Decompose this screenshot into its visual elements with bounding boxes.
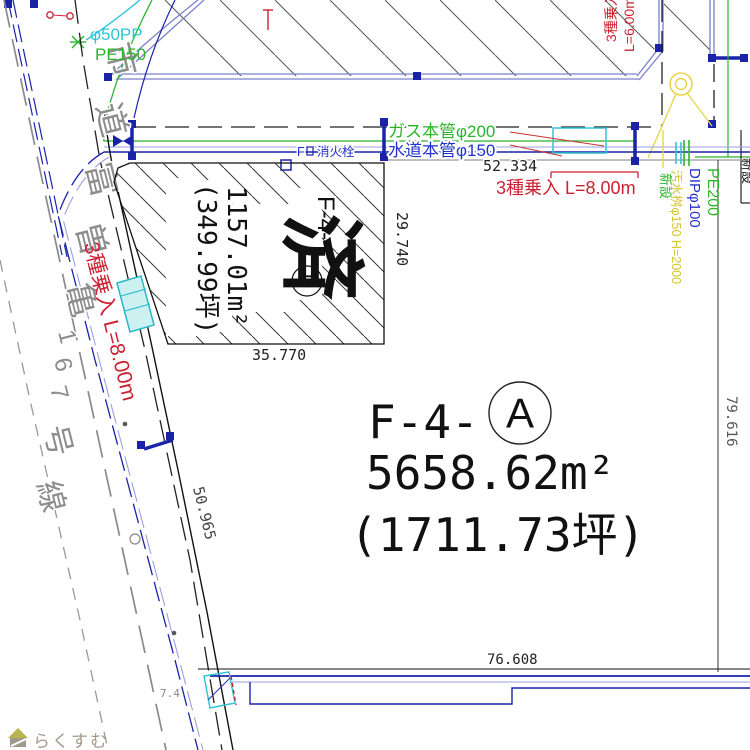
pipe-node-icon: [740, 54, 748, 62]
road-name-char: 号: [37, 421, 78, 460]
dimension-label: 35.770: [252, 346, 306, 364]
road-name-char: 道: [88, 99, 133, 141]
pipe-node-icon: [708, 120, 716, 128]
dimension-label: 7.4: [160, 687, 180, 700]
dimension-label: 52.334: [483, 157, 537, 175]
valve-icon: [137, 432, 174, 449]
parcel-d-tsubo: (349.99坪): [191, 183, 221, 334]
parcel-d-sold-stamp: 済: [272, 214, 368, 301]
dip-label: DIPφ100: [686, 168, 703, 228]
road-dot-icon: [123, 422, 128, 427]
entrance-ne-label: 3種乗入: [603, 0, 619, 42]
parcel-a-tsubo: (1711.73坪): [350, 508, 645, 562]
hydrant-glyph-icon: [307, 147, 313, 155]
service-pipe-label: φ50PP: [90, 25, 143, 44]
pe200-label: PE200: [704, 168, 721, 216]
valve-icon: [631, 122, 639, 165]
road-dot-icon: [172, 631, 177, 636]
road-name-char: 7: [44, 383, 73, 402]
dimension-label: 76.608: [487, 652, 538, 668]
dimension-label: 29.740: [393, 212, 411, 266]
north-parcel: [104, 0, 710, 81]
watermark: らくすむ: [8, 728, 109, 750]
road-name-char: 1: [52, 327, 81, 346]
service-pipe2-label: PE150: [95, 45, 146, 64]
pipe-node-icon: [30, 0, 38, 8]
gas-main-label: ガス本管φ200: [388, 122, 495, 141]
pipe-node-icon: [708, 54, 716, 62]
parcel-a-id: F-4-: [368, 395, 479, 449]
labels: φ50PP PE150 ガス本管φ200 水道本管φ150 F 消火栓 52.3…: [79, 0, 750, 700]
new-install-label: 新設: [740, 158, 750, 184]
streetlight-icon: [648, 73, 712, 158]
road-symbol-icon: [130, 534, 140, 544]
cad-drawing: 市道富曽亀167号線 F-4- D 1157.01m² (349.99坪) 済 …: [0, 0, 750, 750]
parcel-a-circle-letter: A: [506, 390, 534, 437]
entrance-north-label: 3種乗入 L=8.00m: [496, 178, 636, 198]
bottom-boundary: [198, 669, 750, 708]
fitting-icon: [47, 12, 73, 19]
dimension-label: 79.616: [723, 396, 739, 447]
parcel-d-area: 1157.01m²: [221, 186, 251, 327]
entrance-ne-length: L=6.00m: [621, 0, 637, 52]
fitting-icon: [70, 36, 86, 48]
pipe-node-icon: [413, 72, 421, 80]
water-main-label: 水道本管φ150: [388, 141, 495, 160]
parcel-a-area: 5658.62m²: [366, 446, 615, 500]
road-name-char: 6: [48, 355, 77, 374]
parcel-d: F-4- D 1157.01m² (349.99坪) 済 29.740 35.7…: [114, 163, 411, 364]
valve-icon: [380, 118, 388, 161]
new-install-label: 新設: [658, 173, 673, 199]
logo-roof-icon: [8, 728, 28, 738]
hydrant-label: 消火栓: [317, 144, 355, 159]
road-name-char: 線: [30, 477, 71, 516]
watermark-brand: らくすむ: [33, 732, 109, 750]
dimension-label: 50.965: [189, 485, 220, 542]
road-name: 市道富曽亀167号線: [30, 39, 143, 516]
hydrant-prefix: F: [297, 145, 305, 159]
